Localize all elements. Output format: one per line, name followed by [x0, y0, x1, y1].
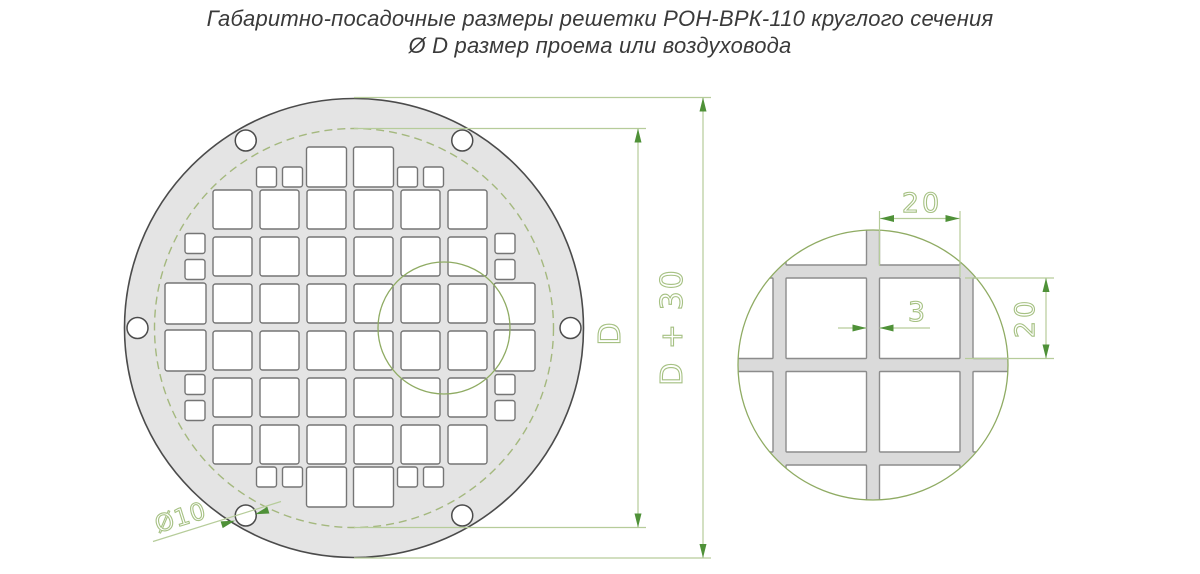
grille-hole-square [307, 147, 347, 187]
grille-hole-square [213, 284, 252, 323]
grille-hole-square [401, 378, 440, 417]
mounting-hole [452, 505, 473, 526]
detail-hole-square [786, 278, 867, 359]
grille-hole-square [398, 467, 418, 487]
grille-hole-square [257, 167, 277, 187]
grille-hole-square [260, 237, 299, 276]
detail-hole-square [880, 372, 961, 453]
dimension-arrow [946, 215, 960, 222]
grille-hole-square [165, 330, 206, 371]
grille-hole-square [283, 167, 303, 187]
drawing-canvas: Габаритно-посадочные размеры решетки РОН… [0, 0, 1200, 574]
dimension-arrow [700, 544, 707, 558]
detail-web-horizontal [728, 359, 1018, 372]
grille-hole-square [185, 375, 205, 395]
grille-hole-square [448, 378, 487, 417]
grille-hole-square [185, 401, 205, 421]
grille-hole-square [307, 378, 346, 417]
grille-hole-square [260, 378, 299, 417]
mounting-hole [235, 505, 256, 526]
grille-hole-square [495, 234, 515, 254]
grille-hole-square [307, 237, 346, 276]
grille-hole-square [213, 378, 252, 417]
mounting-hole [235, 130, 256, 151]
grille-hole-square [185, 234, 205, 254]
detail-hole-square [693, 465, 773, 545]
grille-hole-square [495, 401, 515, 421]
grille-hole-square [260, 284, 299, 323]
grille-hole-square [495, 375, 515, 395]
grille-hole-square [448, 190, 487, 229]
grille-hole-square [257, 467, 277, 487]
grille-hole-square [213, 190, 252, 229]
grille-hole-square [448, 284, 487, 323]
grille-hole-square [307, 467, 347, 507]
detail-hole-square [973, 185, 1053, 265]
dimension-label: 3 [908, 297, 926, 328]
grille-hole-square [354, 237, 393, 276]
grille-hole-square [354, 467, 394, 507]
grille-hole-square [448, 331, 487, 370]
technical-drawing: D + 30DØ1020203 [0, 0, 1200, 574]
dimension-arrow [700, 98, 707, 112]
grille-hole-square [398, 167, 418, 187]
grille-hole-square [260, 331, 299, 370]
main-view: D + 30DØ10 [125, 98, 712, 559]
mounting-hole [560, 318, 581, 339]
grille-hole-square [401, 190, 440, 229]
grille-hole-square [260, 425, 299, 464]
grille-hole-square [165, 283, 206, 324]
grille-hole-square [354, 190, 393, 229]
grille-hole-square [213, 237, 252, 276]
grille-hole-square [401, 425, 440, 464]
dimension-arrow [635, 514, 642, 528]
grille-hole-square [307, 331, 346, 370]
dimension-arrow [1043, 278, 1050, 292]
detail-view: 20203 [693, 185, 1054, 545]
grille-hole-square [494, 330, 535, 371]
dimension-label: 20 [1010, 298, 1041, 338]
grille-hole-square [185, 260, 205, 280]
grille-hole-square [424, 467, 444, 487]
detail-hole-square [786, 372, 867, 453]
dimension-label: D [593, 320, 628, 345]
detail-hole-square [973, 465, 1053, 545]
grille-hole-square [354, 378, 393, 417]
dimension-label: 20 [902, 188, 942, 219]
grille-hole-square [213, 425, 252, 464]
detail-hole-square [693, 185, 773, 265]
dimension-label: D + 30 [655, 268, 690, 385]
grille-hole-square [354, 331, 393, 370]
grille-hole-square [307, 284, 346, 323]
grille-hole-square [354, 147, 394, 187]
grille-hole-square [424, 167, 444, 187]
grille-hole-square [260, 190, 299, 229]
dimension-arrow [880, 215, 894, 222]
grille-hole-square [448, 237, 487, 276]
dimension-arrow [1043, 345, 1050, 359]
detail-grid [693, 185, 1053, 545]
mounting-hole [127, 318, 148, 339]
grille-hole-square [213, 331, 252, 370]
grille-hole-square [401, 284, 440, 323]
grille-hole-square [401, 237, 440, 276]
mounting-hole [452, 130, 473, 151]
grille-hole-square [401, 331, 440, 370]
grille-hole-square [354, 284, 393, 323]
grille-hole-square [307, 425, 346, 464]
grille-hole-square [354, 425, 393, 464]
grille-hole-square [283, 467, 303, 487]
dimension-arrow [221, 521, 235, 529]
grille-hole-square [307, 190, 346, 229]
dimension-arrow [635, 129, 642, 143]
grille-hole-square [494, 283, 535, 324]
grille-hole-square [495, 260, 515, 280]
grille-hole-square [448, 425, 487, 464]
